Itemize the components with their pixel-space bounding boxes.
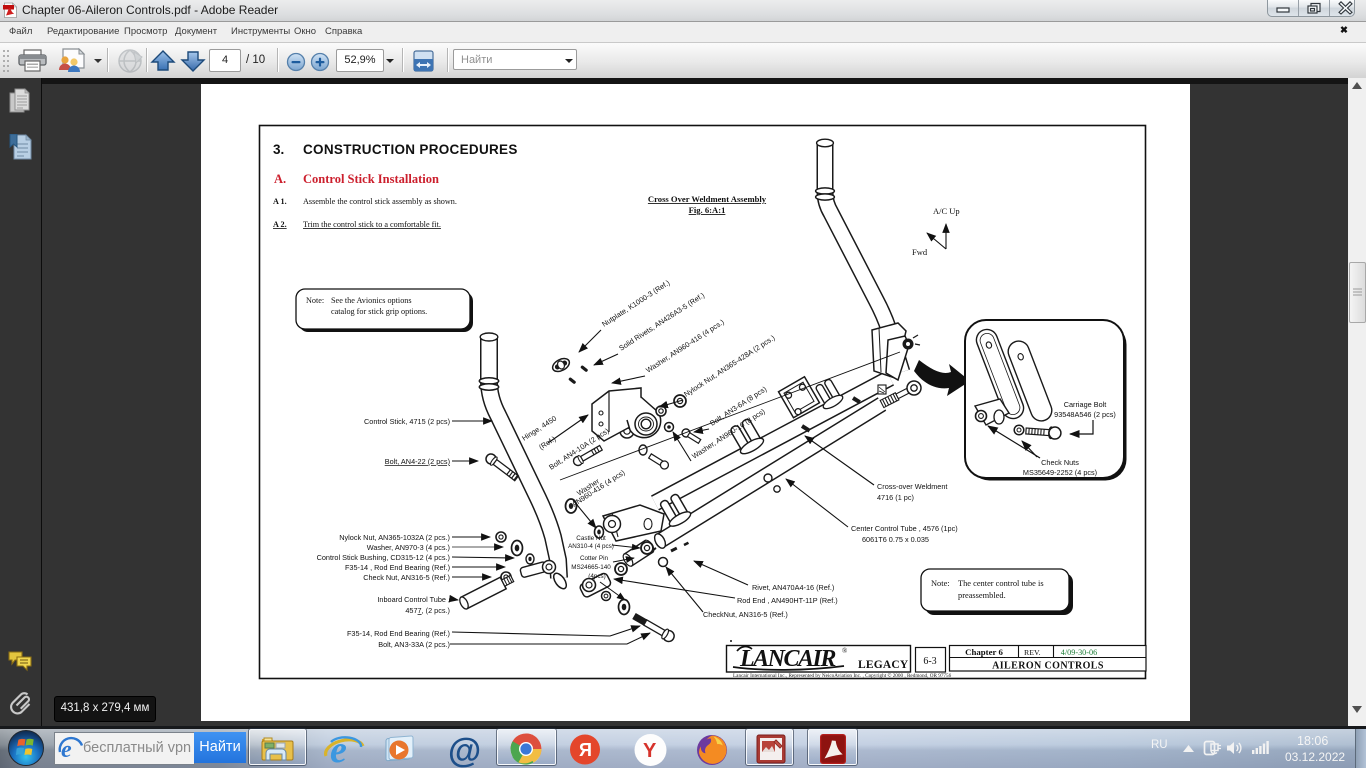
svg-text:Inboard Control Tube ,: Inboard Control Tube , (377, 595, 450, 604)
svg-text:Bolt, AN3-33A (2 pcs.): Bolt, AN3-33A (2 pcs.) (378, 640, 450, 649)
svg-text:Lancair International Inc., R: Lancair International Inc., Represented … (733, 672, 952, 679)
svg-text:MS35649-2252 (4 pcs): MS35649-2252 (4 pcs) (1023, 468, 1097, 477)
svg-text:e: e (330, 730, 347, 768)
svg-text:3.: 3. (273, 142, 284, 157)
svg-text:Trim the control stick to a co: Trim the control stick to a comfortable … (303, 220, 441, 229)
svg-text:The center control tube is: The center control tube is (958, 579, 1044, 588)
svg-text:Y: Y (643, 740, 657, 762)
svg-text:MS24665-140: MS24665-140 (571, 564, 611, 571)
svg-text:F35-14, Rod End Bearing (Ref.): F35-14, Rod End Bearing (Ref.) (347, 629, 450, 638)
svg-text:@: @ (448, 734, 481, 768)
svg-text:Control Stick Installation: Control Stick Installation (303, 172, 439, 186)
svg-text:See the Avionics options: See the Avionics options (331, 296, 412, 305)
svg-text:preassembled.: preassembled. (958, 591, 1006, 600)
svg-text:(4pcs): (4pcs) (588, 573, 606, 580)
svg-text:Carriage Bolt: Carriage Bolt (1064, 400, 1107, 409)
svg-text:Rivet, AN470A4-16 (Ref.): Rivet, AN470A4-16 (Ref.) (752, 583, 834, 592)
svg-text:Castle Nut: Castle Nut (576, 535, 606, 542)
svg-text:Washer, AN970-3 (4 pcs.): Washer, AN970-3 (4 pcs.) (367, 543, 450, 552)
svg-text:4/09-30-06: 4/09-30-06 (1061, 648, 1097, 657)
svg-text:LEGACY: LEGACY (858, 659, 909, 671)
svg-text:CONSTRUCTION PROCEDURES: CONSTRUCTION PROCEDURES (303, 142, 518, 157)
svg-text:A.: A. (274, 172, 286, 186)
svg-text:6-3: 6-3 (923, 656, 936, 667)
svg-text:Chapter 6: Chapter 6 (965, 647, 1003, 657)
svg-text:Control Stick Bushing, CD315-1: Control Stick Bushing, CD315-12 (4 pcs.) (317, 553, 450, 562)
svg-text:Nylock Nut, AN365-1032A (2 pcs: Nylock Nut, AN365-1032A (2 pcs.) (339, 533, 450, 542)
svg-text:Check Nuts: Check Nuts (1041, 458, 1079, 467)
svg-text:Control Stick, 4715 (2 pcs): Control Stick, 4715 (2 pcs) (364, 417, 450, 426)
svg-text:Cross-over Weldment: Cross-over Weldment (877, 482, 947, 491)
svg-text:catalog for stick grip options: catalog for stick grip options. (331, 307, 427, 316)
svg-text:Cross Over Weldment Assembly: Cross Over Weldment Assembly (648, 194, 767, 204)
svg-text:4716 (1 pc): 4716 (1 pc) (877, 493, 914, 502)
svg-text:Check Nut, AN316-5 (Ref.): Check Nut, AN316-5 (Ref.) (363, 573, 450, 582)
svg-text:(Ref.): (Ref.) (537, 434, 557, 451)
svg-text:4577, (2 pcs.): 4577, (2 pcs.) (405, 606, 450, 615)
svg-text:F35-14 , Rod End Bearing (Ref.: F35-14 , Rod End Bearing (Ref.) (345, 563, 450, 572)
svg-text:A 2.: A 2. (273, 220, 287, 229)
svg-text:Bolt, AN4-22 (2 pcs): Bolt, AN4-22 (2 pcs) (385, 457, 450, 466)
svg-text:A 1.: A 1. (273, 197, 287, 206)
svg-text:Note:: Note: (931, 579, 950, 588)
svg-text:93548A546 (2 pcs): 93548A546 (2 pcs) (1054, 410, 1116, 419)
svg-text:A/C Up: A/C Up (933, 206, 960, 216)
svg-text:®: ® (842, 647, 848, 655)
svg-text:REV.: REV. (1024, 648, 1041, 657)
svg-text:Note:: Note: (306, 296, 324, 305)
svg-text:Fig. 6:A:1: Fig. 6:A:1 (689, 205, 726, 215)
svg-text:Fwd: Fwd (912, 247, 928, 257)
svg-text:Cotter Pin: Cotter Pin (580, 555, 608, 562)
svg-text:CheckNut, AN316-5 (Ref.): CheckNut, AN316-5 (Ref.) (703, 610, 788, 619)
svg-text:6061T6 0.75 x 0.035: 6061T6 0.75 x 0.035 (862, 535, 929, 544)
svg-text:AILERON CONTROLS: AILERON CONTROLS (992, 661, 1104, 672)
svg-text:AN310-4 (4 pcs): AN310-4 (4 pcs) (568, 543, 614, 550)
svg-text:Rod End , AN490HT-11P (Ref.): Rod End , AN490HT-11P (Ref.) (737, 596, 838, 605)
svg-text:Center Control Tube , 4576 (1p: Center Control Tube , 4576 (1pc) (851, 524, 958, 533)
svg-text:Assemble the control stick ass: Assemble the control stick assembly as s… (303, 197, 457, 206)
svg-text:Я: Я (579, 740, 592, 760)
